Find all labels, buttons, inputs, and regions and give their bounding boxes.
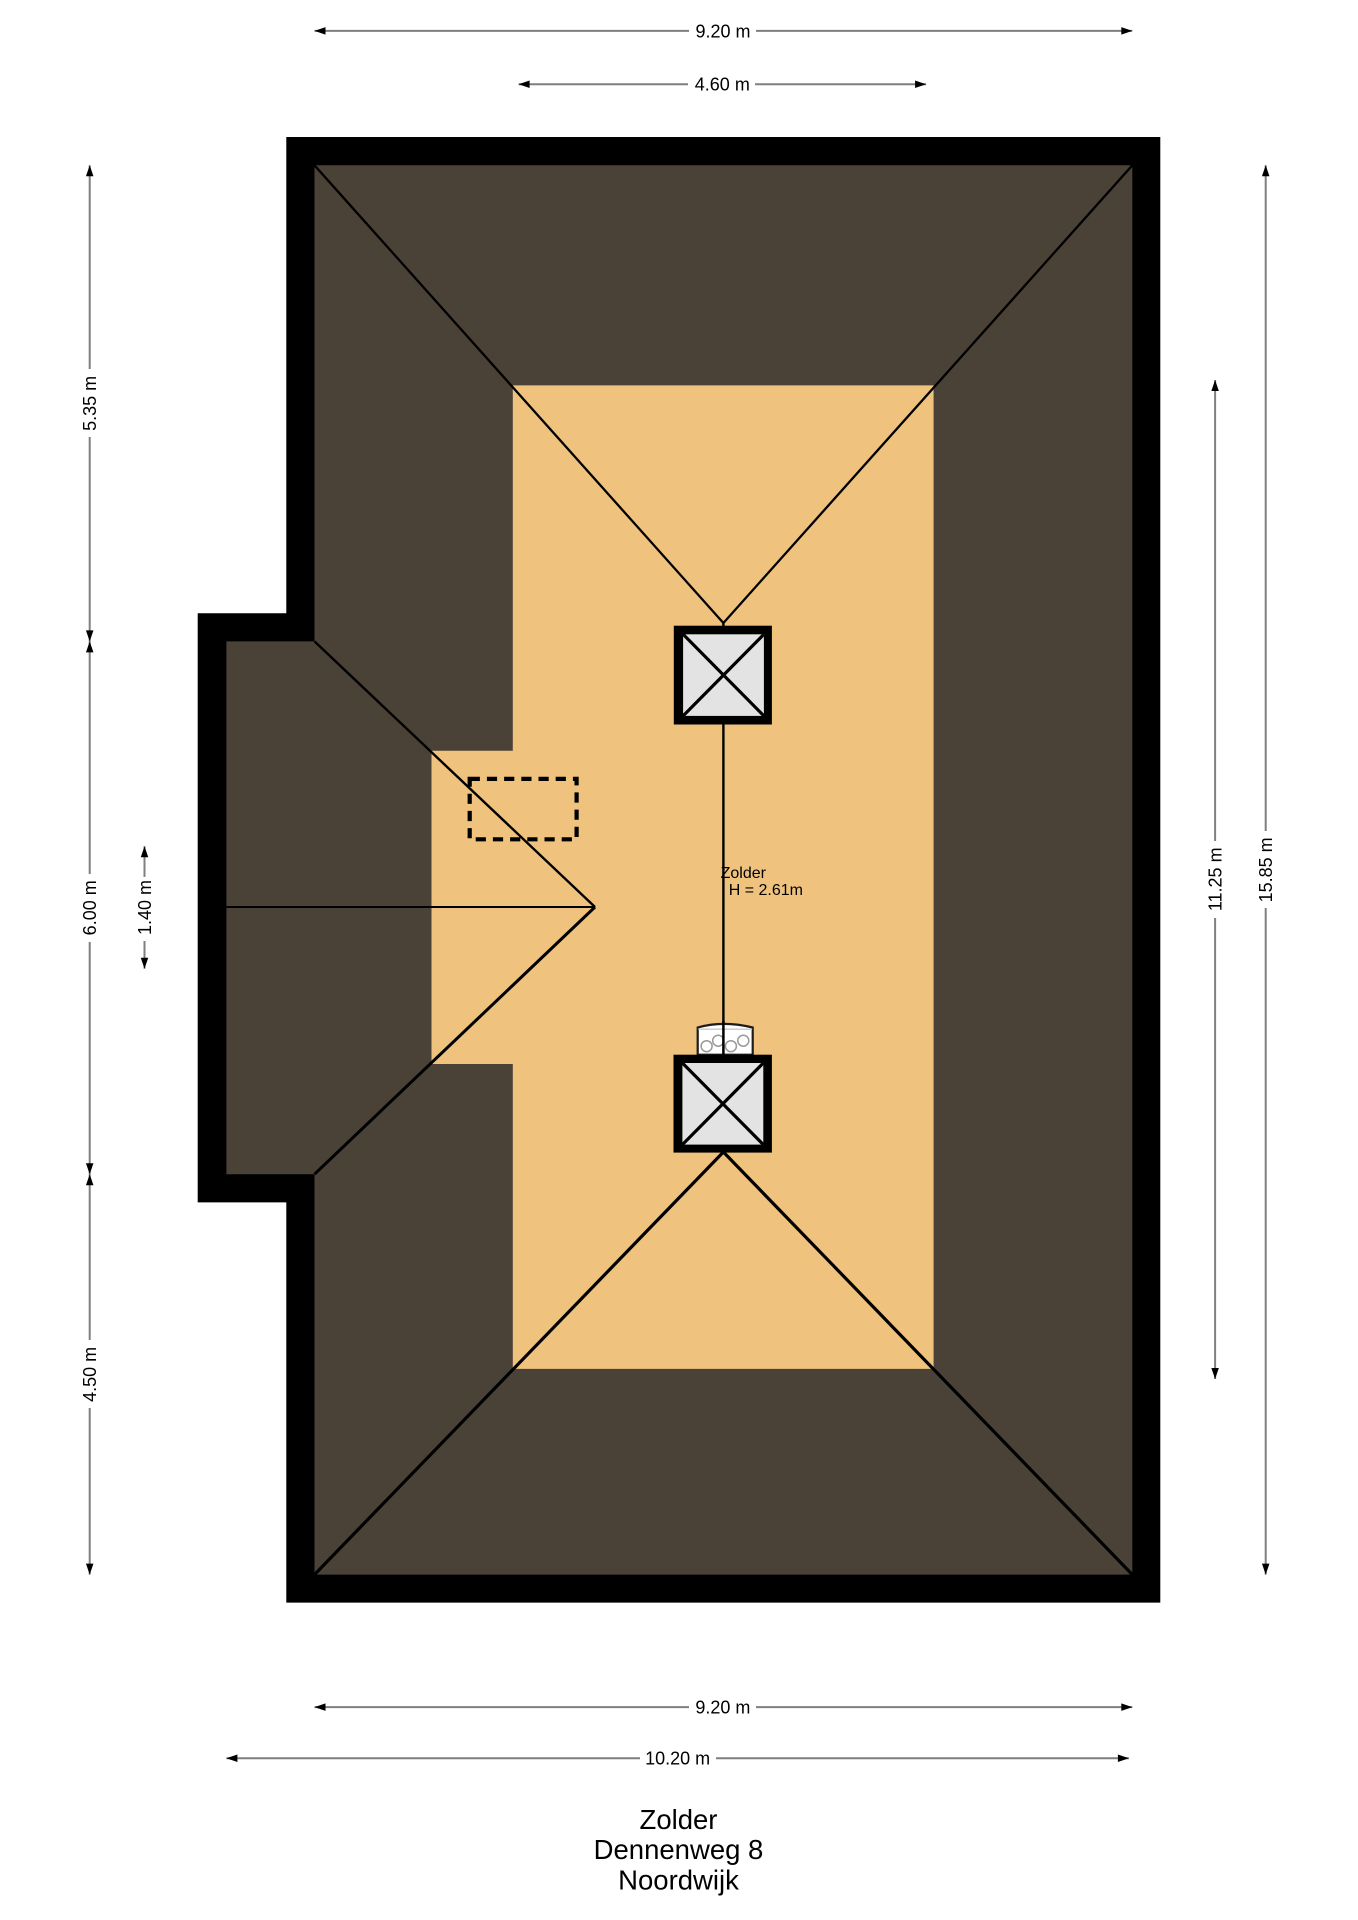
svg-text:H = 2.61m: H = 2.61m bbox=[729, 882, 803, 899]
svg-text:Noordwijk: Noordwijk bbox=[618, 1865, 739, 1896]
svg-text:Zolder: Zolder bbox=[640, 1804, 718, 1835]
svg-text:6.00 m: 6.00 m bbox=[80, 880, 100, 935]
svg-text:5.35 m: 5.35 m bbox=[80, 376, 100, 431]
svg-text:9.20 m: 9.20 m bbox=[695, 21, 750, 41]
svg-text:11.25 m: 11.25 m bbox=[1206, 847, 1226, 911]
svg-text:1.40 m: 1.40 m bbox=[135, 880, 155, 935]
svg-text:4.60 m: 4.60 m bbox=[695, 75, 750, 95]
svg-text:Zolder: Zolder bbox=[721, 865, 767, 882]
svg-text:4.50 m: 4.50 m bbox=[80, 1347, 100, 1402]
svg-text:9.20 m: 9.20 m bbox=[695, 1698, 750, 1718]
svg-text:Dennenweg 8: Dennenweg 8 bbox=[594, 1834, 764, 1865]
svg-text:15.85 m: 15.85 m bbox=[1256, 837, 1276, 902]
svg-text:10.20 m: 10.20 m bbox=[645, 1749, 710, 1769]
